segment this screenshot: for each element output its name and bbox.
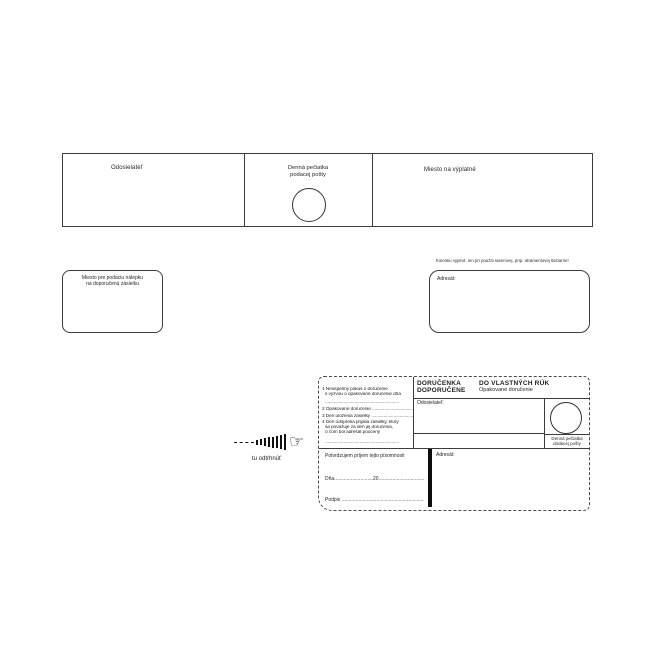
delivery-receipt-form: 1 Neúspešný pokus o doručenie s výzvou o…: [318, 376, 590, 511]
posting-stamp-circle-icon: [292, 188, 326, 222]
address-strip: Odosielateľ Denná pečiatka podacej pošty…: [62, 153, 593, 227]
registration-sticker-box: Miesto pre podaciu nálepku na doporučenú…: [62, 270, 163, 333]
strip-divider-2: [372, 154, 373, 226]
printer-note: Kolónku vyplniť, len pri použití laserov…: [436, 259, 592, 263]
confirmation-label: Potvrdzujem príjem tejto písomnosti: [325, 453, 404, 459]
note-line: 2 Opakované doručenie ..................…: [322, 407, 413, 412]
tear-dashes-icon: [234, 442, 254, 443]
note-line: o čom bol adresát poučený: [322, 430, 413, 435]
note-line: 3 Deň uloženia zásielky ................…: [322, 414, 413, 419]
sender-cell-label: Odosielateľ: [111, 165, 143, 171]
posting-stamp-label: Denná pečiatka podacej pošty: [244, 165, 372, 178]
form-sender-label: Odosielateľ:: [417, 400, 444, 406]
addressee-box: Adresát:: [429, 270, 590, 333]
delivery-stamp-circle-icon: [550, 402, 582, 434]
note-line: s výzvou o opakované doručenie dňa: [322, 392, 413, 397]
tear-off-indicator: ☞: [234, 433, 304, 451]
form-sender-cell-divider: [413, 433, 544, 434]
tear-bars-icon: [256, 434, 288, 450]
note-dotted-line: ........................................…: [322, 400, 413, 405]
date-label: Dňa....................................: [325, 476, 373, 482]
year-label: 20....................................: [373, 476, 425, 482]
form-column-divider: [413, 377, 414, 448]
scanned-postal-form: Odosielateľ Denná pečiatka podacej pošty…: [0, 0, 650, 650]
postage-cell-label: Miesto na výplatné: [424, 167, 476, 173]
addressee-box-label: Adresát:: [437, 276, 456, 282]
form-title: DORUČENKA DOPORUČENE: [417, 380, 466, 394]
delivery-stamp-label: Denná pečiatka dodacej pošty: [545, 434, 589, 446]
form-separator-bar: [428, 449, 432, 507]
form-middle-divider: [319, 448, 589, 449]
note-dotted-line: ........................................…: [322, 440, 413, 445]
delivery-notes-column: 1 Neúspešný pokus o doručenie s výzvou o…: [322, 387, 413, 446]
form-subtitle: DO VLASTNÝCH RÚK Opakované doručenie: [479, 380, 549, 394]
signature-line: Podpis .................................…: [325, 497, 427, 503]
form-addressee-label: Adresát:: [436, 452, 455, 458]
tear-off-label: tu odtrhnúť: [252, 456, 281, 462]
form-header-divider: [413, 398, 589, 399]
date-line: Dňa.................................... …: [325, 476, 425, 482]
pointing-hand-icon: ☞: [289, 434, 304, 451]
